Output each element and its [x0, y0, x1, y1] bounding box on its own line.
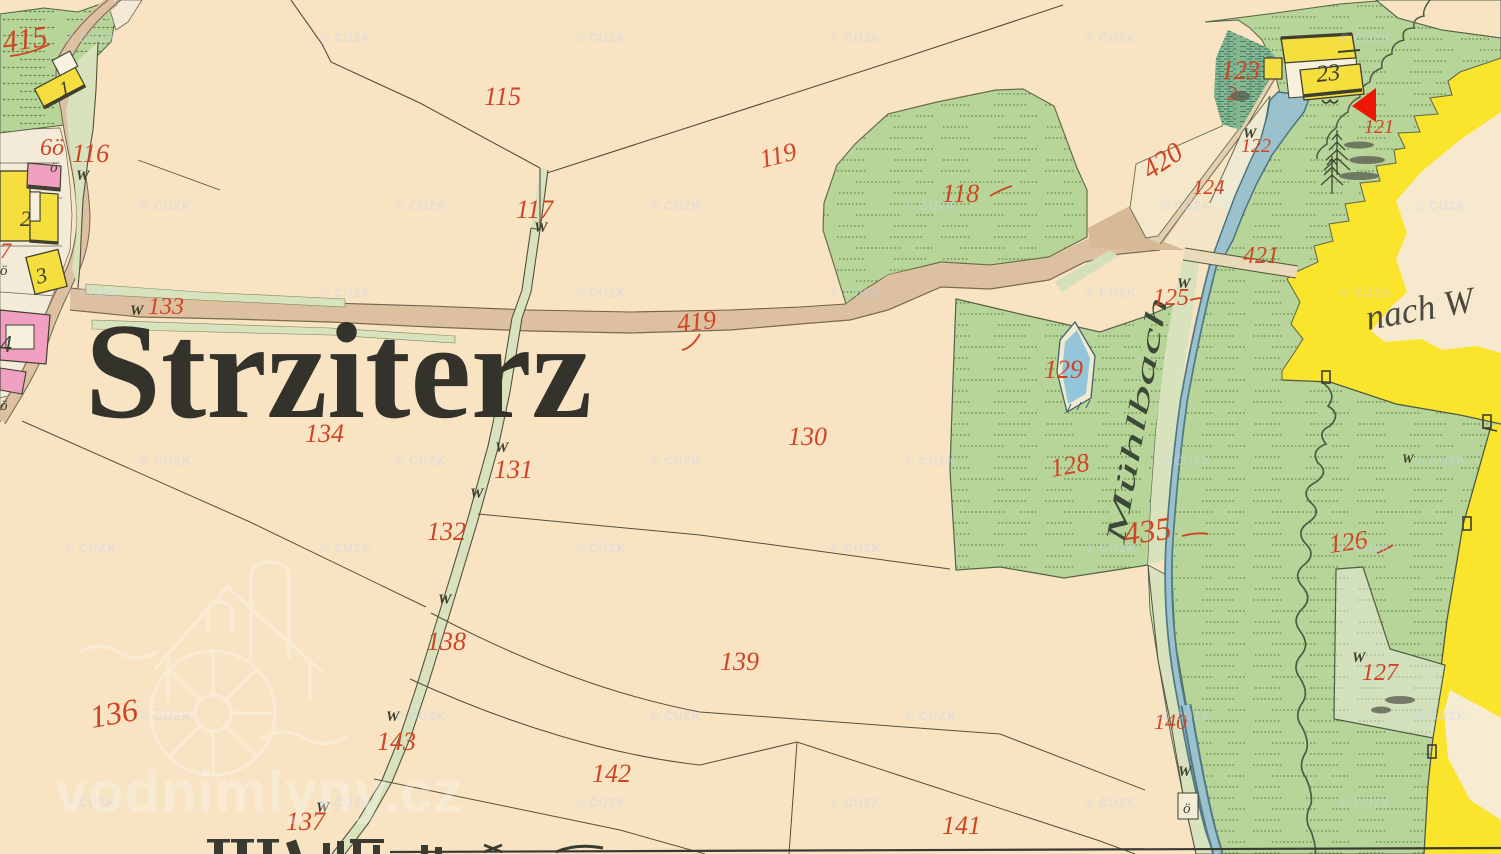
svg-text:W: W [470, 486, 485, 502]
svg-text:© ČÚZK: © ČÚZK [650, 198, 702, 213]
svg-text:W: W [130, 303, 145, 319]
svg-text:ö: ö [0, 263, 8, 279]
svg-text:2: 2 [20, 206, 31, 231]
svg-text:© ČÚZK: © ČÚZK [905, 453, 957, 468]
svg-text:W: W [495, 440, 510, 456]
svg-text:© ČÚZK: © ČÚZK [575, 795, 627, 810]
svg-text:6ö: 6ö [40, 135, 64, 161]
svg-text:141: 141 [942, 811, 981, 840]
svg-text:© ČÚZK: © ČÚZK [1415, 708, 1467, 723]
svg-text:© ČÚZK: © ČÚZK [65, 285, 117, 300]
svg-text:© ČÚZK: © ČÚZK [650, 708, 702, 723]
svg-text:W: W [1243, 126, 1258, 142]
svg-text:130: 130 [788, 422, 827, 451]
svg-text:© ČÚZK: © ČÚZK [575, 540, 627, 555]
svg-text:127: 127 [1362, 660, 1399, 686]
svg-text:134: 134 [305, 419, 344, 448]
svg-text:W: W [1402, 451, 1415, 466]
svg-text:© ČÚZK: © ČÚZK [1160, 453, 1212, 468]
svg-text:138: 138 [427, 627, 466, 656]
svg-text:W: W [534, 220, 549, 236]
svg-text:© ČÚZK: © ČÚZK [1085, 30, 1137, 45]
svg-text:4: 4 [0, 332, 12, 358]
svg-text:W: W [76, 168, 91, 184]
svg-text:121: 121 [1364, 116, 1394, 138]
svg-text:© ČÚZK: © ČÚZK [1340, 30, 1392, 45]
svg-text:© ČÚZK: © ČÚZK [65, 540, 117, 555]
svg-text:© ČÚZK: © ČÚZK [1085, 795, 1137, 810]
svg-text:© ČÚZK: © ČÚZK [830, 795, 882, 810]
svg-text:123: 123 [1221, 56, 1260, 85]
svg-text:© ČÚZK: © ČÚZK [320, 540, 372, 555]
svg-text:© ČÚZK: © ČÚZK [1415, 453, 1467, 468]
svg-text:© ČÚZK: © ČÚZK [65, 30, 117, 45]
svg-text:143: 143 [377, 727, 416, 756]
svg-text:© ČÚZK: © ČÚZK [395, 708, 447, 723]
svg-text:© ČÚZK: © ČÚZK [1340, 795, 1392, 810]
svg-text:139: 139 [720, 647, 759, 676]
svg-text:vodnimlyny.cz: vodnimlyny.cz [55, 760, 463, 825]
svg-text:© ČÚZK: © ČÚZK [1085, 540, 1137, 555]
svg-text:© ČÚZK: © ČÚZK [140, 198, 192, 213]
svg-text:© ČÚZK: © ČÚZK [1085, 285, 1137, 300]
svg-text:W: W [1352, 650, 1367, 666]
svg-text:© ČÚZK: © ČÚZK [1160, 708, 1212, 723]
svg-text:© ČÚZK: © ČÚZK [395, 198, 447, 213]
svg-text:© ČÚZK: © ČÚZK [905, 708, 957, 723]
svg-text:419: 419 [676, 305, 718, 338]
svg-text:421: 421 [1243, 243, 1279, 269]
svg-text:W: W [438, 592, 453, 608]
svg-text:116: 116 [72, 139, 109, 168]
svg-text:© ČÚZK: © ČÚZK [575, 30, 627, 45]
svg-text:© ČÚZK: © ČÚZK [1160, 198, 1212, 213]
svg-text:115: 115 [484, 82, 521, 111]
svg-text:7: 7 [0, 238, 12, 263]
svg-text:© ČÚZK: © ČÚZK [395, 453, 447, 468]
svg-text:© ČÚZK: © ČÚZK [140, 708, 192, 723]
svg-text:© ČÚZK: © ČÚZK [1415, 198, 1467, 213]
svg-text:ö: ö [1183, 801, 1191, 817]
svg-text:142: 142 [592, 759, 631, 788]
svg-text:© ČÚZK: © ČÚZK [650, 453, 702, 468]
svg-text:W: W [1178, 764, 1193, 780]
svg-text:© ČÚZK: © ČÚZK [575, 285, 627, 300]
svg-text:© ČÚZK: © ČÚZK [830, 30, 882, 45]
svg-text:ö: ö [50, 160, 58, 176]
svg-text:132: 132 [427, 517, 466, 546]
svg-text:23: 23 [1315, 60, 1342, 88]
svg-text:© ČÚZK: © ČÚZK [830, 540, 882, 555]
svg-text:ö: ö [0, 398, 8, 414]
svg-text:© ČÚZK: © ČÚZK [140, 453, 192, 468]
svg-text:© ČÚZK: © ČÚZK [320, 285, 372, 300]
svg-text:© ČÚZK: © ČÚZK [1340, 540, 1392, 555]
svg-text:131: 131 [494, 455, 533, 484]
svg-text:© ČÚZK: © ČÚZK [905, 198, 957, 213]
svg-text:124: 124 [1193, 175, 1225, 199]
svg-text:2: 2 [1227, 83, 1237, 105]
svg-text:© ČÚZK: © ČÚZK [830, 285, 882, 300]
svg-text:© ČÚZK: © ČÚZK [320, 30, 372, 45]
svg-text:W: W [1177, 276, 1192, 292]
svg-text:133: 133 [148, 294, 184, 320]
svg-text:129: 129 [1044, 355, 1083, 384]
svg-text:© ČÚZK: © ČÚZK [1340, 285, 1392, 300]
